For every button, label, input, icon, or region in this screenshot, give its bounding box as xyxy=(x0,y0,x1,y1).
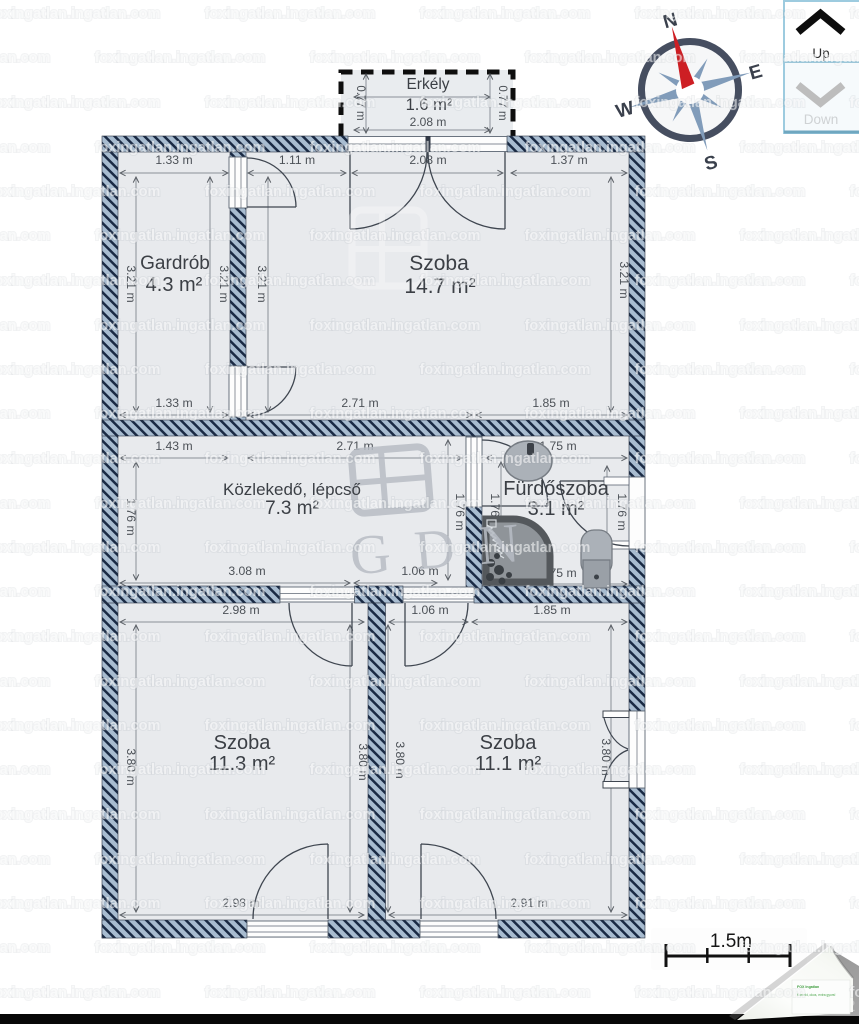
svg-text:foxingatlan.ingatlan.com: foxingatlan.ingatlan.com xyxy=(850,362,859,378)
svg-text:foxingatlan.ingatlan.com: foxingatlan.ingatlan.com xyxy=(95,940,266,956)
svg-text:foxingatlan.ingatlan.com: foxingatlan.ingatlan.com xyxy=(850,807,859,823)
svg-text:foxingatlan.ingatlan.com: foxingatlan.ingatlan.com xyxy=(0,985,160,1001)
svg-text:foxingatlan.ingatlan.com: foxingatlan.ingatlan.com xyxy=(525,50,696,66)
svg-text:foxingatlan.ingatlan.com: foxingatlan.ingatlan.com xyxy=(420,896,591,912)
svg-text:foxingatlan.ingatlan.com: foxingatlan.ingatlan.com xyxy=(0,50,50,66)
svg-text:foxingatlan.ingatlan.com: foxingatlan.ingatlan.com xyxy=(0,6,160,22)
svg-text:W: W xyxy=(614,98,637,123)
svg-text:foxingatlan.ingatlan.com: foxingatlan.ingatlan.com xyxy=(635,807,806,823)
svg-text:foxingatlan.ingatlan.com: foxingatlan.ingatlan.com xyxy=(95,674,266,690)
svg-text:foxingatlan.ingatlan.com: foxingatlan.ingatlan.com xyxy=(0,140,50,156)
svg-text:foxingatlan.ingatlan.com: foxingatlan.ingatlan.com xyxy=(420,985,591,1001)
svg-text:foxingatlan.ingatlan.com: foxingatlan.ingatlan.com xyxy=(525,140,696,156)
svg-text:foxingatlan.ingatlan.com: foxingatlan.ingatlan.com xyxy=(310,50,481,66)
svg-text:foxingatlan.ingatlan.com: foxingatlan.ingatlan.com xyxy=(635,273,806,289)
svg-text:foxingatlan.ingatlan.com: foxingatlan.ingatlan.com xyxy=(310,674,481,690)
svg-text:2.98 m: 2.98 m xyxy=(222,603,259,617)
svg-text:Gardrób: Gardrób xyxy=(140,253,210,274)
svg-text:foxingatlan.ingatlan.com: foxingatlan.ingatlan.com xyxy=(740,406,859,422)
svg-text:foxingatlan.ingatlan.com: foxingatlan.ingatlan.com xyxy=(525,318,696,334)
svg-text:foxingatlan.ingatlan.com: foxingatlan.ingatlan.com xyxy=(420,273,591,289)
svg-text:foxingatlan.ingatlan.com: foxingatlan.ingatlan.com xyxy=(310,140,481,156)
svg-text:foxingatlan.ingatlan.com: foxingatlan.ingatlan.com xyxy=(0,852,50,868)
svg-text:foxingatlan.ingatlan.com: foxingatlan.ingatlan.com xyxy=(0,273,160,289)
svg-text:foxingatlan.ingatlan.com: foxingatlan.ingatlan.com xyxy=(635,95,806,111)
svg-text:foxingatlan.ingatlan.com: foxingatlan.ingatlan.com xyxy=(850,629,859,645)
svg-text:foxingatlan.ingatlan.com: foxingatlan.ingatlan.com xyxy=(95,50,266,66)
svg-text:foxingatlan.ingatlan.com: foxingatlan.ingatlan.com xyxy=(850,540,859,556)
svg-text:foxingatlan.ingatlan.com: foxingatlan.ingatlan.com xyxy=(635,629,806,645)
svg-text:foxingatlan.ingatlan.com: foxingatlan.ingatlan.com xyxy=(420,184,591,200)
svg-text:foxingatlan.ingatlan.com: foxingatlan.ingatlan.com xyxy=(740,940,859,956)
svg-text:foxingatlan.ingatlan.com: foxingatlan.ingatlan.com xyxy=(205,184,376,200)
svg-text:foxingatlan.ingatlan.com: foxingatlan.ingatlan.com xyxy=(0,584,50,600)
svg-text:foxingatlan.ingatlan.com: foxingatlan.ingatlan.com xyxy=(0,318,50,334)
svg-text:3.08 m: 3.08 m xyxy=(228,564,265,578)
svg-text:foxingatlan.ingatlan.com: foxingatlan.ingatlan.com xyxy=(95,318,266,334)
svg-text:foxingatlan.ingatlan.com: foxingatlan.ingatlan.com xyxy=(525,762,696,778)
svg-text:foxingatlan.ingatlan.com: foxingatlan.ingatlan.com xyxy=(635,985,806,1001)
svg-text:foxingatlan.ingatlan.com: foxingatlan.ingatlan.com xyxy=(850,985,859,1001)
svg-text:Szoba: Szoba xyxy=(480,732,538,754)
svg-text:foxingatlan.ingatlan.com: foxingatlan.ingatlan.com xyxy=(310,406,481,422)
svg-text:foxingatlan.ingatlan.com: foxingatlan.ingatlan.com xyxy=(0,674,50,690)
svg-text:foxingatlan.ingatlan.com: foxingatlan.ingatlan.com xyxy=(205,273,376,289)
svg-text:foxingatlan.ingatlan.com: foxingatlan.ingatlan.com xyxy=(850,6,859,22)
svg-text:foxingatlan.ingatlan.com: foxingatlan.ingatlan.com xyxy=(0,940,50,956)
svg-text:foxingatlan.ingatlan.com: foxingatlan.ingatlan.com xyxy=(0,228,50,244)
svg-text:foxingatlan.ingatlan.com: foxingatlan.ingatlan.com xyxy=(205,95,376,111)
svg-text:foxingatlan.ingatlan.com: foxingatlan.ingatlan.com xyxy=(850,95,859,111)
svg-text:foxingatlan.ingatlan.com: foxingatlan.ingatlan.com xyxy=(850,184,859,200)
svg-text:foxingatlan.ingatlan.com: foxingatlan.ingatlan.com xyxy=(0,896,160,912)
svg-text:foxingatlan.ingatlan.com: foxingatlan.ingatlan.com xyxy=(205,629,376,645)
svg-text:foxingatlan.ingatlan.com: foxingatlan.ingatlan.com xyxy=(635,184,806,200)
svg-text:foxingatlan.ingatlan.com: foxingatlan.ingatlan.com xyxy=(740,50,859,66)
svg-text:foxingatlan.ingatlan.com: foxingatlan.ingatlan.com xyxy=(525,852,696,868)
svg-text:foxingatlan.ingatlan.com: foxingatlan.ingatlan.com xyxy=(525,584,696,600)
svg-text:foxingatlan.ingatlan.com: foxingatlan.ingatlan.com xyxy=(525,406,696,422)
svg-text:foxingatlan.ingatlan.com: foxingatlan.ingatlan.com xyxy=(525,228,696,244)
svg-text:foxingatlan.ingatlan.com: foxingatlan.ingatlan.com xyxy=(0,451,160,467)
svg-text:foxingatlan.ingatlan.com: foxingatlan.ingatlan.com xyxy=(0,496,50,512)
svg-text:foxingatlan.ingatlan.com: foxingatlan.ingatlan.com xyxy=(205,451,376,467)
svg-text:foxingatlan.ingatlan.com: foxingatlan.ingatlan.com xyxy=(310,940,481,956)
svg-text:foxingatlan.ingatlan.com: foxingatlan.ingatlan.com xyxy=(420,629,591,645)
svg-text:foxingatlan.ingatlan.com: foxingatlan.ingatlan.com xyxy=(310,852,481,868)
svg-text:foxingatlan.ingatlan.com: foxingatlan.ingatlan.com xyxy=(850,896,859,912)
svg-text:foxingatlan.ingatlan.com: foxingatlan.ingatlan.com xyxy=(420,95,591,111)
svg-text:foxingatlan.ingatlan.com: foxingatlan.ingatlan.com xyxy=(420,451,591,467)
svg-text:foxingatlan.ingatlan.com: foxingatlan.ingatlan.com xyxy=(95,228,266,244)
svg-text:foxingatlan.ingatlan.com: foxingatlan.ingatlan.com xyxy=(95,762,266,778)
svg-text:foxingatlan.ingatlan.com: foxingatlan.ingatlan.com xyxy=(420,6,591,22)
svg-text:foxingatlan.ingatlan.com: foxingatlan.ingatlan.com xyxy=(205,896,376,912)
svg-text:foxingatlan.ingatlan.com: foxingatlan.ingatlan.com xyxy=(635,540,806,556)
svg-text:foxingatlan.ingatlan.com: foxingatlan.ingatlan.com xyxy=(740,228,859,244)
svg-text:foxingatlan.ingatlan.com: foxingatlan.ingatlan.com xyxy=(525,674,696,690)
svg-text:foxingatlan.ingatlan.com: foxingatlan.ingatlan.com xyxy=(95,584,266,600)
svg-text:foxingatlan.ingatlan.com: foxingatlan.ingatlan.com xyxy=(0,184,160,200)
svg-text:1.06 m: 1.06 m xyxy=(411,603,448,617)
svg-text:foxingatlan.ingatlan.com: foxingatlan.ingatlan.com xyxy=(740,584,859,600)
svg-text:foxingatlan.ingatlan.com: foxingatlan.ingatlan.com xyxy=(0,629,160,645)
svg-text:S: S xyxy=(702,152,720,176)
svg-text:foxingatlan.ingatlan.com: foxingatlan.ingatlan.com xyxy=(740,852,859,868)
svg-text:foxingatlan.ingatlan.com: foxingatlan.ingatlan.com xyxy=(95,140,266,156)
svg-text:foxingatlan.ingatlan.com: foxingatlan.ingatlan.com xyxy=(310,318,481,334)
svg-text:foxingatlan.ingatlan.com: foxingatlan.ingatlan.com xyxy=(420,362,591,378)
svg-text:foxingatlan.ingatlan.com: foxingatlan.ingatlan.com xyxy=(0,718,160,734)
svg-text:foxingatlan.ingatlan.com: foxingatlan.ingatlan.com xyxy=(0,807,160,823)
svg-text:1.43 m: 1.43 m xyxy=(155,439,192,453)
svg-text:Szoba: Szoba xyxy=(214,732,272,754)
svg-text:foxingatlan.ingatlan.com: foxingatlan.ingatlan.com xyxy=(850,273,859,289)
svg-text:foxingatlan.ingatlan.com: foxingatlan.ingatlan.com xyxy=(95,406,266,422)
svg-text:foxingatlan.ingatlan.com: foxingatlan.ingatlan.com xyxy=(635,6,806,22)
svg-text:foxingatlan.ingatlan.com: foxingatlan.ingatlan.com xyxy=(205,718,376,734)
svg-text:foxingatlan.ingatlan.com: foxingatlan.ingatlan.com xyxy=(310,584,481,600)
svg-text:Down: Down xyxy=(804,112,839,127)
svg-text:foxingatlan.ingatlan.com: foxingatlan.ingatlan.com xyxy=(525,496,696,512)
svg-text:foxingatlan.ingatlan.com: foxingatlan.ingatlan.com xyxy=(0,95,160,111)
svg-text:foxingatlan.ingatlan.com: foxingatlan.ingatlan.com xyxy=(525,940,696,956)
svg-text:foxingatlan.ingatlan.com: foxingatlan.ingatlan.com xyxy=(205,985,376,1001)
svg-text:2.08 m: 2.08 m xyxy=(410,115,447,129)
svg-text:foxingatlan.ingatlan.com: foxingatlan.ingatlan.com xyxy=(310,228,481,244)
svg-text:Erkély: Erkély xyxy=(406,76,449,93)
svg-text:foxingatlan.ingatlan.com: foxingatlan.ingatlan.com xyxy=(205,807,376,823)
svg-text:foxingatlan.ingatlan.com: foxingatlan.ingatlan.com xyxy=(205,6,376,22)
svg-text:foxingatlan.ingatlan.com: foxingatlan.ingatlan.com xyxy=(740,496,859,512)
svg-text:foxingatlan.ingatlan.com: foxingatlan.ingatlan.com xyxy=(420,807,591,823)
svg-text:foxingatlan.ingatlan.com: foxingatlan.ingatlan.com xyxy=(420,718,591,734)
svg-text:foxingatlan.ingatlan.com: foxingatlan.ingatlan.com xyxy=(205,362,376,378)
svg-text:Szoba: Szoba xyxy=(409,252,469,275)
svg-text:foxingatlan.ingatlan.com: foxingatlan.ingatlan.com xyxy=(95,496,266,512)
svg-text:foxingatlan.ingatlan.com: foxingatlan.ingatlan.com xyxy=(0,362,160,378)
svg-text:foxingatlan.ingatlan.com: foxingatlan.ingatlan.com xyxy=(310,496,481,512)
svg-text:1.85 m: 1.85 m xyxy=(533,603,570,617)
svg-text:foxingatlan.ingatlan.com: foxingatlan.ingatlan.com xyxy=(635,362,806,378)
svg-text:foxingatlan.ingatlan.com: foxingatlan.ingatlan.com xyxy=(850,451,859,467)
svg-text:foxingatlan.ingatlan.com: foxingatlan.ingatlan.com xyxy=(740,140,859,156)
svg-text:foxingatlan.ingatlan.com: foxingatlan.ingatlan.com xyxy=(0,406,50,422)
svg-text:foxingatlan.ingatlan.com: foxingatlan.ingatlan.com xyxy=(635,718,806,734)
svg-text:foxingatlan.ingatlan.com: foxingatlan.ingatlan.com xyxy=(205,540,376,556)
svg-text:foxingatlan.ingatlan.com: foxingatlan.ingatlan.com xyxy=(740,318,859,334)
svg-text:foxingatlan.ingatlan.com: foxingatlan.ingatlan.com xyxy=(0,762,50,778)
svg-text:foxingatlan.ingatlan.com: foxingatlan.ingatlan.com xyxy=(850,718,859,734)
svg-text:foxingatlan.ingatlan.com: foxingatlan.ingatlan.com xyxy=(635,451,806,467)
svg-text:foxingatlan.ingatlan.com: foxingatlan.ingatlan.com xyxy=(635,896,806,912)
svg-text:foxingatlan.ingatlan.com: foxingatlan.ingatlan.com xyxy=(740,762,859,778)
svg-text:foxingatlan.ingatlan.com: foxingatlan.ingatlan.com xyxy=(95,852,266,868)
svg-text:foxingatlan.ingatlan.com: foxingatlan.ingatlan.com xyxy=(740,674,859,690)
svg-text:foxingatlan.ingatlan.com: foxingatlan.ingatlan.com xyxy=(420,540,591,556)
svg-text:foxingatlan.ingatlan.com: foxingatlan.ingatlan.com xyxy=(310,762,481,778)
svg-text:foxingatlan.ingatlan.com: foxingatlan.ingatlan.com xyxy=(0,540,160,556)
